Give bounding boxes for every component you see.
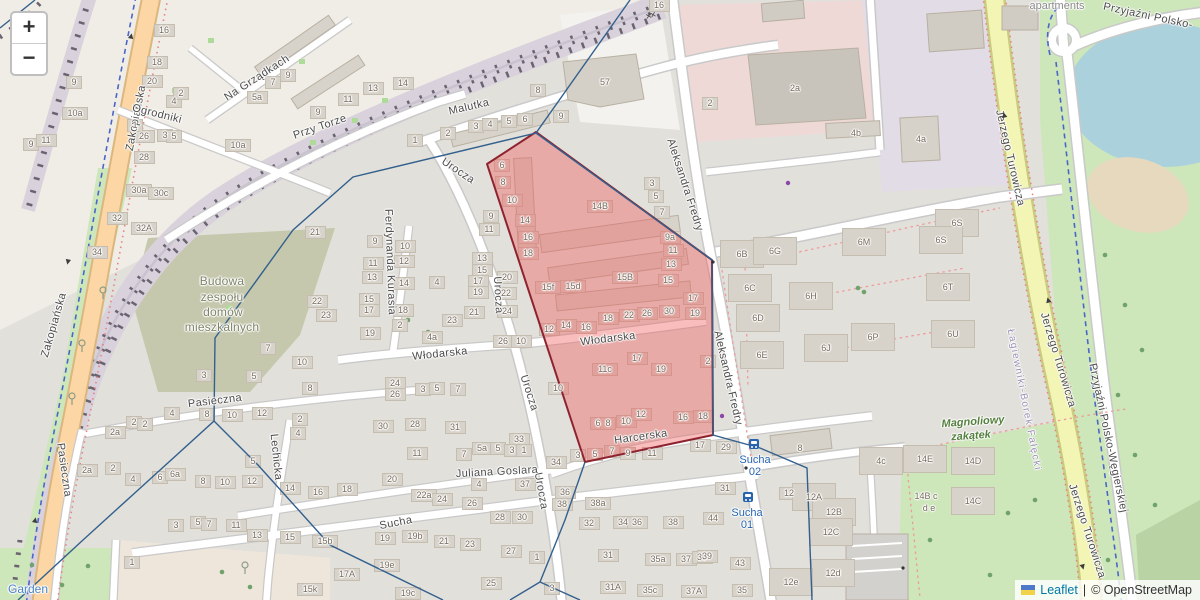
house-number-label: 4 [171,96,176,106]
house-number-label: 28 [139,152,149,162]
house-number-label: 4 [130,474,135,484]
house-number-label: 5 [195,517,200,527]
street-label: Na Grządkach [222,53,292,104]
house-number-label: 4 [476,479,481,489]
house-number-label: 36 [560,487,570,497]
street-label: Przyjaźni Polsko- [1102,1,1194,32]
house-number-label: 36 [632,517,642,527]
house-number-label: 9 [28,139,33,149]
house-number-label: 14D [965,456,982,466]
house-number-label: 18 [398,305,408,315]
house-number-label: 44 [708,513,718,523]
house-number-label: 22 [624,310,634,320]
house-number-label: 2 [707,98,712,108]
oneway-arrow-icon: ▶ [127,33,136,40]
street-label: Włodarska [580,330,637,349]
house-number-label: 18 [603,313,613,323]
house-number-label: 12B [826,507,842,517]
house-number-label: 9 [285,70,290,80]
osm-copyright: © OpenStreetMap [1091,583,1192,597]
street-label: Pasieczna [187,392,242,411]
house-number-label: 18 [342,484,352,494]
house-number-label: 22 [312,296,322,306]
house-number-label: 14 [285,483,295,493]
house-number-label: 8 [200,476,205,486]
house-number-label: 11 [231,520,240,530]
attribution-separator: | [1083,583,1086,597]
house-number-label: 20 [147,76,157,86]
house-number-label: 18 [152,57,162,67]
house-number-label: 11 [647,448,656,458]
house-number-label: 15B [617,272,633,282]
house-number-label: 13 [666,259,676,269]
house-number-label: 21 [310,227,320,237]
oneway-arrow-icon: ▶ [31,517,40,524]
house-number-label: 10a [230,140,245,150]
house-number-label: 15k [303,584,318,594]
house-number-label: 1 [129,557,134,567]
street-label: Jerzego Turowicza [1038,311,1078,409]
park-label: zakątek [951,429,992,444]
house-number-label: 30 [664,306,674,316]
house-number-label: 31 [450,422,460,432]
house-number-label: 7 [659,207,664,217]
house-number-label: 8 [204,409,209,419]
house-number-label: 7 [461,449,466,459]
house-number-label: 13 [252,530,262,540]
house-number-label: 2 [397,320,402,330]
street-label: Włodarska [412,345,469,363]
house-number-label: 3 [509,445,514,455]
house-number-label: 26 [139,131,149,141]
house-number-label: 15 [663,275,673,285]
bus-stop-icon[interactable] [743,492,753,502]
street-label: Ferdynanda Kurasia [382,209,398,316]
house-number-label: 17 [632,353,642,363]
house-number-label: 23 [321,310,331,320]
house-number-label: 4a [916,134,926,144]
house-number-label: 19c [401,588,416,598]
house-number-label: 24 [390,378,400,388]
house-number-label: 10a [67,108,82,118]
house-number-label: 18 [523,248,533,258]
zoom-control: + − [10,11,48,76]
house-number-label: 9 [488,211,493,221]
house-number-label: 14B c [914,491,937,501]
house-number-label: 15b [317,536,332,546]
house-number-label: 2 [131,417,136,427]
house-number-label: 3 [173,520,178,530]
house-number-label: 11 [368,258,377,268]
house-number-label: 13 [477,253,487,263]
level-crossing-icon: ✕✕ [644,10,655,21]
house-number-label: 32A [136,223,152,233]
house-number-label: 17 [364,305,374,315]
house-number-label: d e [923,503,936,513]
house-number-label: 6a [170,469,180,479]
house-number-label: 4c [876,456,886,466]
house-number-label: 35c [643,585,658,595]
house-number-label: 17A [339,569,355,579]
house-number-label: 8 [535,85,540,95]
house-number-label: 31 [720,483,730,493]
house-number-label: 20 [387,474,397,484]
house-number-label: 4 [295,428,300,438]
house-number-label: 34 [92,247,102,257]
house-number-label: 35 [737,585,747,595]
house-number-label: 14 [520,215,530,225]
house-number-label: 21 [439,536,449,546]
house-number-label: 4 [434,277,439,287]
house-number-label: 6H [805,291,817,301]
house-number-label: 15f [542,282,555,292]
construction-label: zespołu [201,290,244,304]
house-number-label: 3 [162,130,167,140]
house-number-label: 6D [752,313,764,323]
house-number-label: 6T [943,282,954,292]
house-number-label: 5 [653,191,658,201]
house-number-label: 5a [252,92,262,102]
house-number-label: 35a [650,554,665,564]
street-label: Przy Torze [292,112,349,142]
oneway-arrow-icon: ▶ [999,111,1008,118]
house-number-label: 11 [412,448,421,458]
house-number-label: 19 [690,308,700,318]
construction-label: mieszkalnych [185,320,259,334]
street-label: Urocza [532,472,550,511]
house-number-label: 16 [581,322,591,332]
house-number-label: 8 [605,418,610,428]
house-number-label: 24 [502,306,512,316]
house-number-label: 38a [590,498,605,508]
house-number-label: 10 [227,410,237,420]
house-number-label: 21 [469,307,479,317]
house-number-label: 3 [473,121,478,131]
street-label: Urocza [439,156,477,187]
house-number-label: 9 [558,111,563,121]
house-number-label: 37 [681,554,691,564]
house-number-label: 29 [721,442,731,452]
house-number-label: 12 [247,476,257,486]
house-number-label: 2 [110,463,115,473]
house-number-label: 17 [688,293,698,303]
bus-stop-icon[interactable] [749,439,759,449]
zoom-out-button[interactable]: − [12,43,46,74]
garden-label: Garden [8,582,48,596]
house-number-label: 32 [584,518,594,528]
house-number-label: 6P [867,332,878,342]
house-number-label: 31A [605,582,621,592]
house-number-label: 5a [477,443,487,453]
attribution-bar: Leaflet | © OpenStreetMap [1015,580,1200,600]
house-number-label: 3 [201,370,206,380]
house-number-label: 3 [420,384,425,394]
street-label: Lechicka [268,433,285,481]
street-label: Jerzego Turowicza [1066,482,1108,579]
house-number-label: 6U [947,329,959,339]
house-number-label: 2a [110,427,120,437]
house-number-label: 26 [642,308,652,318]
house-number-label: 12 [257,408,267,418]
house-number-label: 6M [858,237,871,247]
house-number-label: 14 [561,320,571,330]
house-number-label: 30 [378,421,388,431]
street-label: Przyjaźni Polsko-Węgierskiej [1086,362,1129,514]
house-number-label: 5 [171,131,176,141]
street-label: Aleksandra Fredry [711,330,744,427]
house-number-label: 7 [270,77,275,87]
place-label: apartments [1029,0,1084,12]
house-number-label: 31 [603,550,613,560]
street-label: Urocza [518,373,541,412]
transit-stop-label: Sucha02 [739,454,770,478]
oneway-arrow-icon: ▶ [1078,563,1087,570]
house-number-label: 18 [698,411,708,421]
ukraine-flag-icon [1021,585,1035,595]
house-number-label: 12 [636,409,646,419]
house-number-label: 12 [399,256,409,266]
house-number-label: 19 [473,287,483,297]
house-number-label: 15d [565,281,580,291]
house-number-label: 38 [668,517,678,527]
oneway-arrow-icon: ▶ [1043,296,1052,303]
house-number-label: 14B [592,201,608,211]
house-number-label: 24 [437,494,447,504]
house-number-label: 22 [501,288,511,298]
house-number-label: 16 [678,412,688,422]
street-label: Sucha [379,514,414,532]
house-number-label: 12A [806,492,822,502]
house-number-label: 2 [445,128,450,138]
street-label: Jerzego Turowicza [993,109,1027,208]
oneway-arrow-icon: ▶ [64,259,73,266]
house-number-label: 14 [398,78,408,88]
house-number-label: 30c [154,188,169,198]
street-label: Urocza [491,276,505,314]
house-number-label: 2a [82,465,92,475]
house-number-label: 11 [484,224,493,234]
house-number-label: 19e [379,560,394,570]
house-number-label: 15 [477,265,487,275]
park-label: Magnoliowy [941,414,1005,430]
house-number-label: 2a [790,83,800,93]
zoom-in-button[interactable]: + [12,13,46,43]
house-number-label: 6G [769,246,781,256]
house-number-label: 17 [695,440,705,450]
street-label: Juliana Goslara [456,464,539,480]
house-number-label: 2 [705,356,710,366]
house-number-label: 30a [131,185,146,195]
house-number-label: 26 [467,498,477,508]
house-number-label: 4b [851,128,861,138]
house-number-label: 38 [557,499,567,509]
house-number-label: 1 [412,135,417,145]
house-number-label: 12 [544,324,554,334]
house-number-label: 43 [735,558,745,568]
house-number-label: 12 [784,488,794,498]
house-number-label: 2 [142,419,147,429]
house-number-label: 9a [665,232,675,242]
house-number-label: 16 [523,232,533,242]
house-number-label: 34 [551,457,561,467]
house-number-label: 16 [654,0,664,10]
house-number-label: 3 [649,178,654,188]
house-number-label: 14E [917,454,933,464]
house-number-label: 5 [495,443,500,453]
house-number-label: 6E [756,350,767,360]
house-number-label: 5 [506,116,511,126]
house-number-label: 1 [132,120,137,130]
house-number-label: 14 [399,278,409,288]
house-number-label: 16 [313,487,323,497]
street-label: Ogrodniki [131,102,183,126]
house-number-label: 23 [447,315,457,325]
house-number-label: 26 [390,389,400,399]
house-number-label: 10 [621,416,631,426]
house-number-label: 16 [159,25,169,35]
construction-label: domów [203,305,243,319]
house-number-label: 10 [553,383,563,393]
house-number-label: 7 [206,519,211,529]
house-number-label: 5 [251,371,256,381]
street-label: Aleksandra Fredry [664,137,705,233]
house-number-label: 32 [112,213,122,223]
street-label: Zakopiańska [39,291,69,359]
house-number-label: 1 [534,552,539,562]
house-number-label: 11 [41,135,50,145]
house-number-label: 11c [598,364,612,374]
house-number-label: 57 [600,77,610,87]
house-number-label: 10 [220,477,230,487]
house-number-label: 5 [434,383,439,393]
house-number-label: 7 [455,384,460,394]
house-number-label: 6 [595,418,600,428]
house-number-label: 9 [71,77,76,87]
house-number-label: 19b [407,531,422,541]
house-number-label: 5 [250,456,255,466]
house-number-label: 4 [169,408,174,418]
house-number-label: 11 [668,245,677,255]
house-number-label: 4 [487,119,492,129]
house-number-label: 28 [495,512,505,522]
house-number-label: 7 [609,446,614,456]
house-number-label: 15 [364,294,374,304]
house-number-label: 9 [315,107,320,117]
house-number-label: 10 [297,357,307,367]
house-number-label: 11 [343,94,352,104]
house-number-label: 6B [736,249,747,259]
leaflet-link[interactable]: Leaflet [1040,583,1078,597]
house-number-label: 6 [522,114,527,124]
house-number-label: 27 [506,546,516,556]
house-number-label: 4a [427,332,437,342]
house-number-label: 6J [821,343,831,353]
house-number-label: 20 [502,272,512,282]
house-number-label: 34 [618,517,628,527]
house-number-label: 15 [285,532,295,542]
street-label: Pasieczna [54,442,73,498]
house-number-label: 30 [517,512,527,522]
house-number-label: 7 [265,343,270,353]
house-number-label: 5 [592,449,597,459]
house-number-label: 8 [307,383,312,393]
house-number-label: 1 [521,445,526,455]
house-number-label: 2 [297,414,302,424]
house-number-label: 13 [367,272,377,282]
house-number-label: 12e [783,577,798,587]
house-number-label: 6S [935,235,946,245]
house-number-label: 14C [965,496,982,506]
house-number-label: 6S [951,218,962,228]
house-number-label: 10 [516,336,526,346]
house-number-label: 39 [697,552,707,562]
house-number-label: 39 [702,551,712,561]
house-number-label: 19 [380,533,390,543]
house-number-label: 3 [549,583,554,593]
map-viewport[interactable]: ZakopiańskaZakopiańskaOgrodnikiNa Grządk… [0,0,1200,600]
house-number-label: 22a [416,490,431,500]
house-number-label: 25 [486,578,496,588]
house-number-label: 9 [625,448,630,458]
house-number-label: 28 [410,419,420,429]
house-number-label: 13 [368,83,378,93]
house-number-label: 2 [178,88,183,98]
house-number-label: 12C [823,527,840,537]
house-number-label: 6C [744,283,756,293]
construction-label: Budowa [200,274,245,288]
street-label: Harcerska [614,427,669,446]
house-number-label: 12d [825,568,840,578]
house-number-label: 10 [507,195,517,205]
house-number-label: 8 [797,443,802,453]
house-number-label: 17 [473,276,483,286]
transit-stop-label: Sucha01 [731,507,762,531]
house-number-label: 23 [465,539,475,549]
house-number-label: 37A [686,586,702,596]
labels-layer: ZakopiańskaZakopiańskaOgrodnikiNa Grządk… [0,0,1200,600]
street-label: Zakopiańska [124,84,149,152]
house-number-label: 6 [157,472,162,482]
house-number-label: 19 [365,328,375,338]
house-number-label: 8 [500,177,505,187]
house-number-label: 37 [520,479,530,489]
house-number-label: 33 [514,434,524,444]
house-number-label: 9 [372,236,377,246]
house-number-label: 19 [656,364,666,374]
district-label: Łagiewniki-Borek Fałęcki [1005,328,1043,472]
house-number-label: 3 [575,450,580,460]
street-label: Malutka [448,97,491,118]
house-number-label: 6 [499,160,504,170]
house-number-label: 10 [400,241,410,251]
house-number-label: 26 [498,336,508,346]
